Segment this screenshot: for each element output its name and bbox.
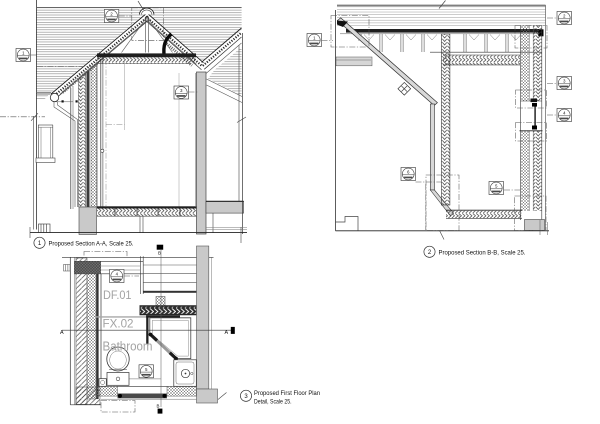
svg-text:Proposed First Floor Plan: Proposed First Floor Plan	[254, 390, 321, 397]
svg-text:Detail, Scale 25.: Detail, Scale 25.	[254, 399, 292, 406]
svg-text:FX.02: FX.02	[103, 317, 134, 331]
svg-text:A: A	[225, 330, 229, 336]
svg-text:Bathroom: Bathroom	[103, 339, 153, 354]
svg-text:B: B	[157, 404, 160, 409]
svg-text:Proposed Section A-A, Scale 25: Proposed Section A-A, Scale 25.	[49, 240, 134, 247]
svg-text:DF.01: DF.01	[103, 288, 132, 302]
svg-text:B: B	[158, 251, 161, 256]
svg-text:A: A	[60, 330, 64, 336]
svg-text:Proposed Section B-B, Scale 25: Proposed Section B-B, Scale 25.	[439, 249, 526, 256]
